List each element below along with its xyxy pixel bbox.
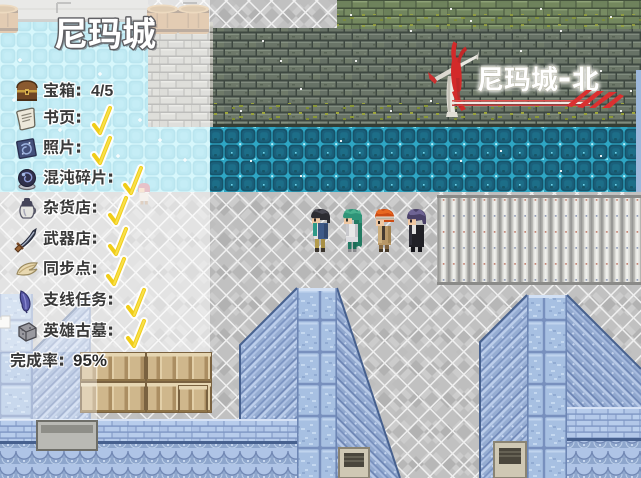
svg-text:4/5: 4/5 (91, 83, 113, 100)
svg-text:95%: 95% (73, 351, 107, 370)
